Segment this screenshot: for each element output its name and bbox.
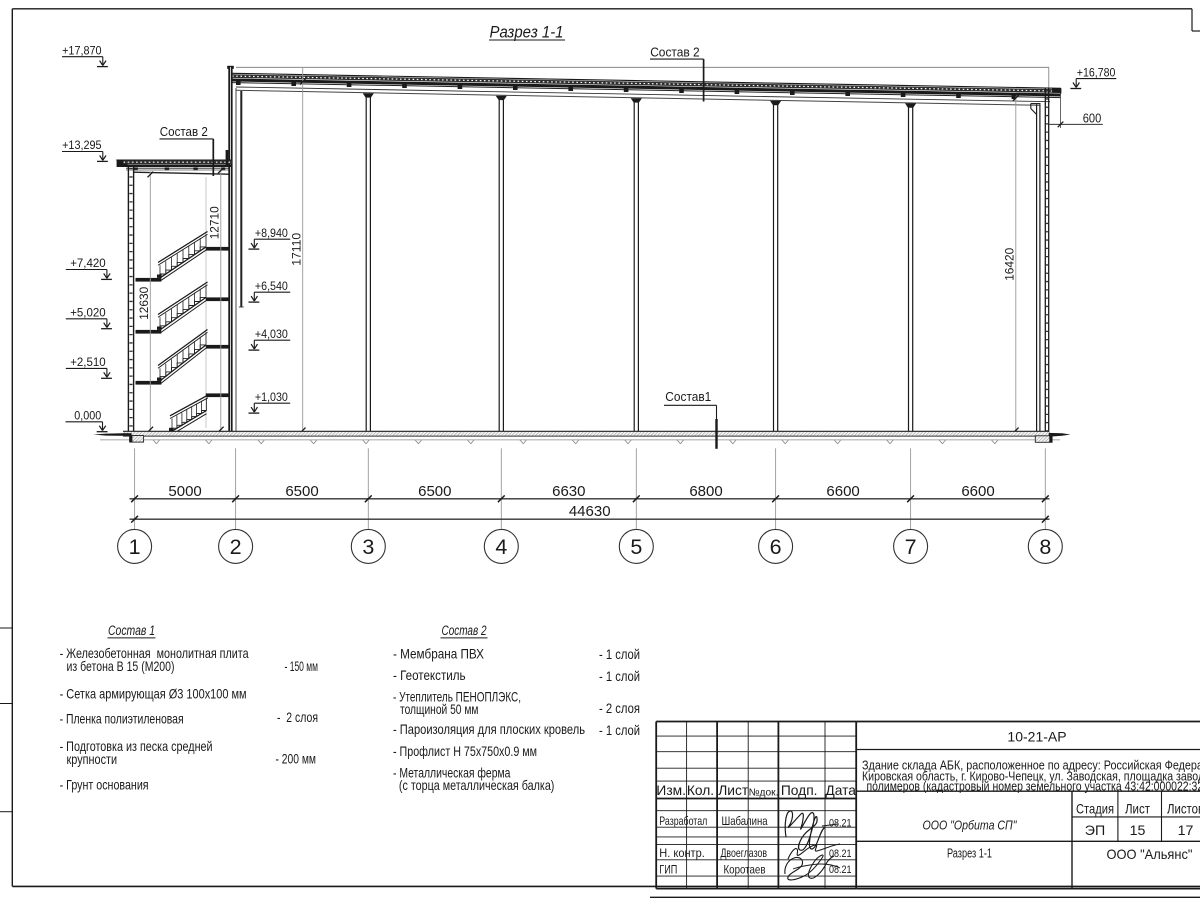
svg-text:Н. контр.: Н. контр. bbox=[659, 846, 705, 860]
svg-text:- 2 слоя: - 2 слоя bbox=[599, 700, 640, 716]
svg-text:- Геотекстиль: - Геотекстиль bbox=[393, 667, 466, 683]
svg-text:Кол.: Кол. bbox=[687, 783, 714, 798]
svg-text:+5,020: +5,020 bbox=[70, 306, 106, 320]
svg-text:Подп.: Подп. bbox=[781, 783, 818, 798]
svg-text:ООО "Альянс": ООО "Альянс" bbox=[1107, 847, 1193, 862]
svg-text:Лист: Лист bbox=[718, 783, 749, 798]
svg-text:Состав 2: Состав 2 bbox=[442, 623, 487, 638]
svg-text:2: 2 bbox=[230, 535, 242, 559]
svg-text:Состав 1: Состав 1 bbox=[108, 623, 155, 638]
svg-text:- 150 мм: - 150 мм bbox=[285, 658, 319, 674]
svg-text:1: 1 bbox=[129, 535, 141, 559]
svg-text:+2,510: +2,510 bbox=[70, 355, 106, 369]
svg-text:- Пленка полиэтиленовая: - Пленка полиэтиленовая bbox=[60, 710, 184, 726]
svg-text:- Профлист Н 75х750х0.9 мм: - Профлист Н 75х750х0.9 мм bbox=[393, 743, 537, 759]
svg-text:- Сетка армирующая Ø3 100х100: - Сетка армирующая Ø3 100х100 мм bbox=[60, 685, 247, 701]
svg-text:+1,030: +1,030 bbox=[255, 390, 288, 404]
svg-text:44630: 44630 bbox=[569, 503, 611, 520]
svg-text:17110: 17110 bbox=[290, 233, 304, 266]
svg-text:600: 600 bbox=[1083, 110, 1102, 125]
svg-text:- Грунт основания: - Грунт основания bbox=[60, 777, 149, 793]
svg-text:+17,870: +17,870 bbox=[62, 43, 102, 57]
svg-text:ЭП: ЭП bbox=[1085, 823, 1105, 839]
svg-text:08.21: 08.21 bbox=[829, 817, 852, 829]
svg-text:- 1 слой: - 1 слой bbox=[599, 646, 640, 662]
svg-text:Дата: Дата bbox=[825, 783, 856, 798]
svg-text:6: 6 bbox=[770, 535, 782, 559]
svg-text:0,000: 0,000 bbox=[74, 409, 101, 423]
svg-text:Состав 2: Состав 2 bbox=[160, 124, 208, 139]
svg-text:+16,780: +16,780 bbox=[1077, 65, 1116, 79]
svg-text:Листов: Листов bbox=[1167, 801, 1200, 817]
svg-text:- Пароизоляция для плоских кро: - Пароизоляция для плоских кровель bbox=[393, 721, 585, 737]
svg-text:+6,540: +6,540 bbox=[255, 279, 288, 293]
svg-text:12710: 12710 bbox=[208, 206, 222, 239]
svg-text:12630: 12630 bbox=[137, 287, 151, 320]
svg-text:Лист: Лист bbox=[1125, 801, 1150, 817]
svg-text:10-21-АР: 10-21-АР bbox=[1007, 729, 1066, 745]
svg-text:6600: 6600 bbox=[826, 483, 859, 500]
svg-text:6500: 6500 bbox=[418, 483, 451, 500]
svg-text:15: 15 bbox=[1130, 823, 1146, 839]
svg-text:6630: 6630 bbox=[552, 483, 585, 500]
svg-text:крупности: крупности bbox=[67, 751, 118, 767]
svg-text:+7,420: +7,420 bbox=[70, 256, 106, 270]
svg-text:Разрез 1-1: Разрез 1-1 bbox=[490, 23, 564, 41]
svg-text:- 1 слой: - 1 слой bbox=[599, 722, 640, 738]
svg-text:4: 4 bbox=[495, 535, 507, 559]
svg-text:толщиной 50 мм: толщиной 50 мм bbox=[400, 701, 478, 717]
svg-text:5000: 5000 bbox=[168, 483, 201, 500]
svg-text:Коротаев: Коротаев bbox=[724, 862, 766, 876]
svg-text:6500: 6500 bbox=[285, 483, 318, 500]
svg-text:+13,295: +13,295 bbox=[62, 138, 102, 152]
svg-text:№док.: №док. bbox=[749, 788, 779, 799]
svg-text:полимеров (кадастровый номер з: полимеров (кадастровый номер земельного … bbox=[867, 779, 1200, 794]
svg-text:Разрез 1-1: Разрез 1-1 bbox=[947, 845, 992, 860]
svg-text:ГИП: ГИП bbox=[659, 862, 677, 876]
svg-text:- Мембрана ПВХ: - Мембрана ПВХ bbox=[393, 645, 485, 661]
svg-text:- 200 мм: - 200 мм bbox=[276, 751, 317, 767]
svg-text:Стадия: Стадия bbox=[1076, 801, 1114, 817]
svg-text:6600: 6600 bbox=[961, 483, 994, 500]
svg-text:3: 3 bbox=[362, 535, 374, 559]
svg-text:- 2 слоя: - 2 слоя bbox=[277, 709, 318, 725]
svg-text:Двоеглазов: Двоеглазов bbox=[721, 846, 768, 860]
svg-text:Разработал: Разработал bbox=[659, 814, 707, 828]
svg-text:+4,030: +4,030 bbox=[255, 327, 288, 341]
svg-text:16420: 16420 bbox=[1002, 248, 1016, 281]
svg-text:7: 7 bbox=[905, 535, 917, 559]
svg-text:+8,940: +8,940 bbox=[255, 226, 288, 240]
svg-text:08.21: 08.21 bbox=[829, 848, 852, 860]
svg-text:Состав 2: Состав 2 bbox=[650, 44, 700, 59]
svg-text:5: 5 bbox=[630, 535, 642, 559]
svg-text:Состав1: Состав1 bbox=[665, 389, 711, 404]
svg-text:Шабалина: Шабалина bbox=[722, 814, 768, 828]
svg-text:Изм.: Изм. bbox=[656, 783, 686, 798]
svg-text:ООО "Орбита СП": ООО "Орбита СП" bbox=[923, 818, 1018, 833]
svg-text:из бетона В 15 (М200): из бетона В 15 (М200) bbox=[67, 658, 175, 674]
svg-text:8: 8 bbox=[1039, 535, 1051, 559]
svg-text:- 1 слой: - 1 слой bbox=[599, 668, 640, 684]
svg-text:(с торца металлическая балка): (с торца металлическая балка) bbox=[399, 777, 555, 793]
svg-text:17: 17 bbox=[1178, 823, 1194, 839]
svg-text:6800: 6800 bbox=[689, 483, 722, 500]
